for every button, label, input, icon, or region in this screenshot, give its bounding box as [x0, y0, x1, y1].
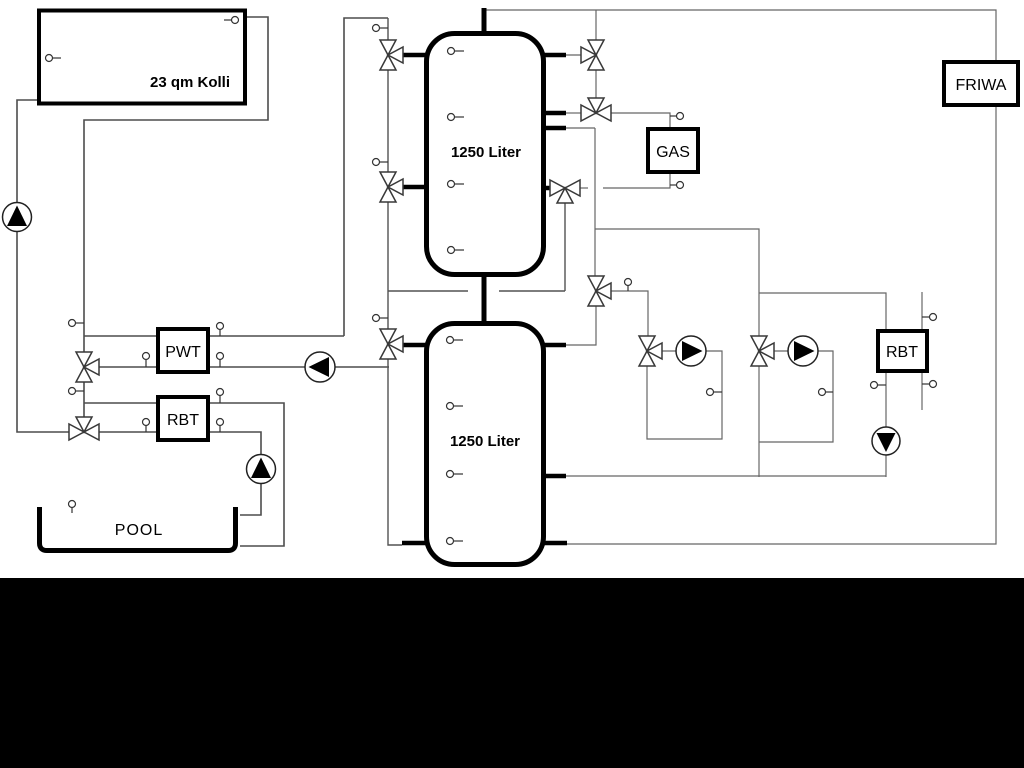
svg-text:GAS: GAS [656, 144, 690, 161]
svg-text:RBT: RBT [167, 412, 199, 429]
svg-text:1250 Liter: 1250 Liter [450, 433, 520, 450]
svg-text:1250 Liter: 1250 Liter [451, 144, 521, 161]
svg-text:23 qm Kolli: 23 qm Kolli [150, 74, 230, 91]
svg-text:POOL: POOL [115, 522, 163, 539]
svg-text:FRIWA: FRIWA [956, 77, 1007, 94]
svg-text:RBT: RBT [886, 344, 918, 361]
svg-text:PWT: PWT [165, 344, 201, 361]
